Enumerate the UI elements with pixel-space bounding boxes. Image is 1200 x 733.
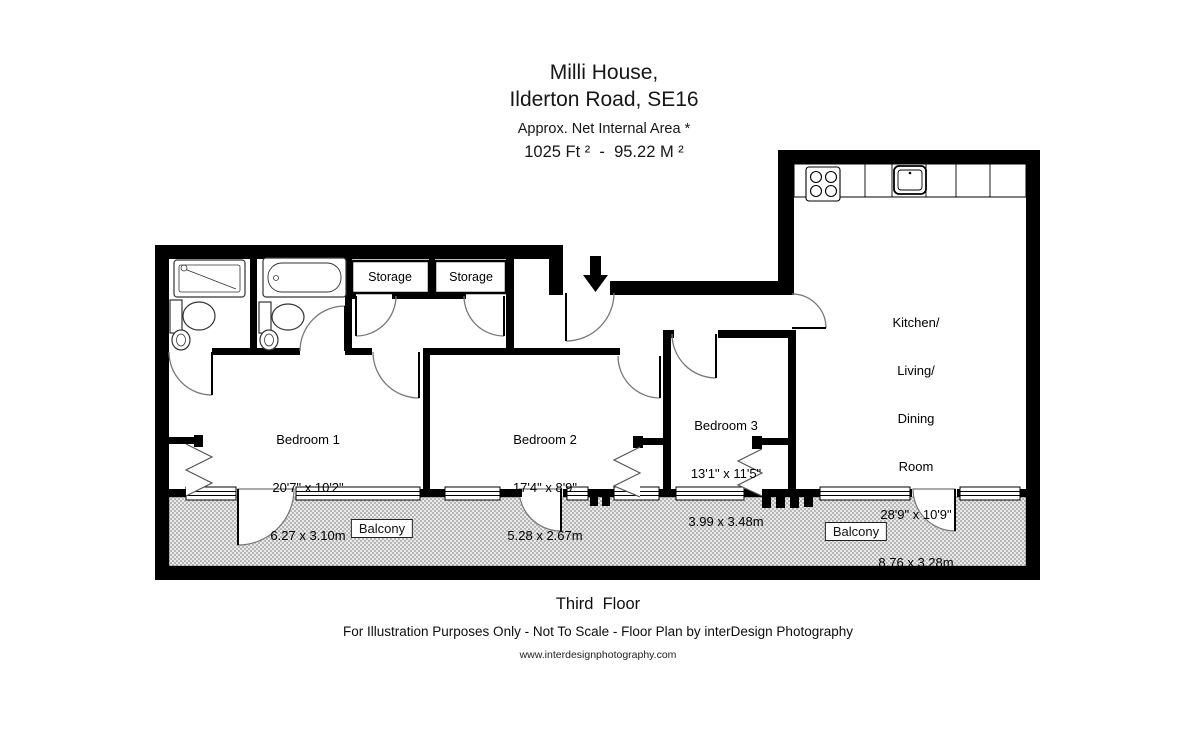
toilet-icon <box>170 300 215 333</box>
bedroom3-metric: 3.99 x 3.48m <box>688 514 763 530</box>
entrance-arrow-icon <box>583 256 608 292</box>
bedroom1-metric: 6.27 x 3.10m <box>270 528 345 544</box>
bedroom2-name: Bedroom 2 <box>507 432 582 448</box>
kitchen-fixtures <box>794 164 1026 201</box>
floor-name: Third Floor <box>556 596 640 612</box>
bedroom1-name: Bedroom 1 <box>270 432 345 448</box>
floor-plan-page: Milli House, Ilderton Road, SE16 Approx.… <box>0 0 1200 733</box>
storage1-label: Storage <box>368 269 412 285</box>
hob-icon <box>806 167 840 201</box>
toilet-icon <box>259 302 304 333</box>
kitchen-name-line1: Kitchen/ <box>878 315 953 331</box>
sink-icon <box>260 330 278 350</box>
bedroom1-imperial: 20'7" x 10'2" <box>270 480 345 496</box>
bedroom3-imperial: 13'1" x 11'5" <box>688 466 763 482</box>
plan-title-line2: Ilderton Road, SE16 <box>509 86 698 113</box>
bedroom3-label: Bedroom 3 13'1" x 11'5" 3.99 x 3.48m <box>688 386 763 562</box>
kitchen-label: Kitchen/ Living/ Dining Room 28'9" x 10'… <box>878 283 953 603</box>
storage2-label: Storage <box>449 269 493 285</box>
plan-subtitle: Approx. Net Internal Area * <box>518 121 691 137</box>
bathroom1-fixtures <box>170 260 245 350</box>
plan-area-text: 1025 Ft ² - 95.22 M ² <box>524 144 684 160</box>
kitchen-name-line2: Living/ <box>878 363 953 379</box>
footer-disclaimer: For Illustration Purposes Only - Not To … <box>343 624 853 640</box>
balcony-right-label: Balcony <box>825 522 887 541</box>
sink-icon <box>172 330 190 350</box>
shower-icon <box>174 260 245 297</box>
footer-website: www.interdesignphotography.com <box>520 647 677 663</box>
bedroom2-metric: 5.28 x 2.67m <box>507 528 582 544</box>
bathtub-icon <box>263 258 346 297</box>
plan-title-line1: Milli House, <box>550 59 659 86</box>
bedroom1-label: Bedroom 1 20'7" x 10'2" 6.27 x 3.10m <box>270 400 345 576</box>
balcony-left-label: Balcony <box>351 519 413 538</box>
kitchen-imperial: 28'9" x 10'9" <box>878 507 953 523</box>
kitchen-name-line3: Dining <box>878 411 953 427</box>
kitchen-sink-icon <box>894 166 926 194</box>
bedroom2-imperial: 17'4" x 8'9" <box>507 480 582 496</box>
bedroom3-name: Bedroom 3 <box>688 418 763 434</box>
kitchen-name-line4: Room <box>878 459 953 475</box>
bedroom2-label: Bedroom 2 17'4" x 8'9" 5.28 x 2.67m <box>507 400 582 576</box>
kitchen-metric: 8.76 x 3.28m <box>878 555 953 571</box>
